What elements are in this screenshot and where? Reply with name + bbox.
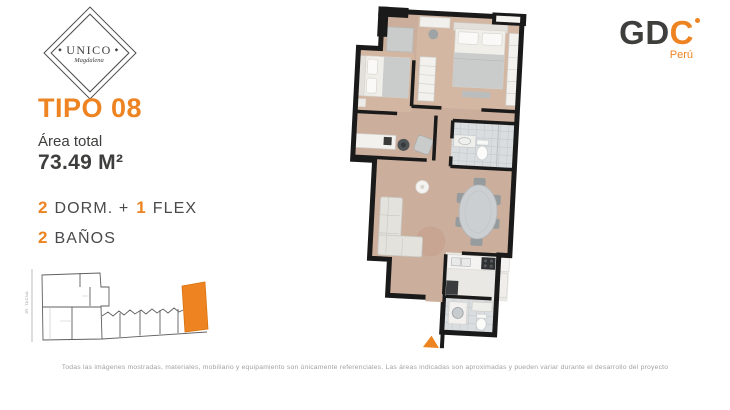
toilet-tank (477, 140, 489, 146)
dorm-label: DORM. + (54, 200, 129, 218)
diamond-ornament-icon: ◆ (58, 48, 63, 53)
entrance-marker-icon (423, 335, 440, 348)
area-value: 73.49 M² (38, 151, 123, 175)
bathroom-2 (444, 298, 497, 334)
gdc-wordmark: GDC (608, 16, 700, 49)
bathroom-1 (450, 120, 516, 169)
gdc-prefix: GD (619, 14, 670, 51)
floorplan (338, 4, 568, 360)
dresser (386, 27, 413, 52)
area-label: Área total (38, 133, 102, 150)
kitchen-cabinet-dark (446, 280, 459, 295)
disclaimer-text: Todas las imágenes mostradas, materiales… (0, 364, 730, 371)
desk (420, 17, 450, 29)
duvet-2 (382, 57, 410, 98)
diamond-ornament-icon: ◆ (115, 48, 120, 53)
flex-count: 1 (136, 198, 145, 218)
building-inner-detail (50, 296, 90, 340)
stove (481, 257, 496, 270)
flex-label: FLEX (153, 200, 197, 218)
bath-label: BAÑOS (54, 230, 116, 248)
sink (453, 135, 476, 148)
closet (418, 57, 436, 102)
duvet (453, 52, 505, 89)
toilet-2 (476, 318, 487, 331)
gdc-logo: GDC Perú (608, 16, 700, 61)
dorm-count: 2 (38, 198, 47, 218)
unit-type-title: TIPO 08 (38, 93, 142, 124)
kitchen-sink (451, 258, 460, 266)
gdc-trademark-dot-icon (695, 18, 700, 23)
toilet (476, 146, 488, 161)
entrance-gap (425, 293, 442, 302)
unico-logo: ◆ UNICO ◆ Magdalena (50, 12, 128, 92)
bath2-counter (472, 302, 492, 312)
spec-dorm-flex: 2 DORM. + 1 FLEX (38, 198, 197, 218)
nightstand (357, 98, 365, 106)
logo-title: UNICO (66, 43, 112, 58)
building-footprint-minimap: JR. TACNA (20, 266, 220, 346)
bath-count: 2 (38, 228, 47, 248)
spec-banos: 2 BAÑOS (38, 228, 116, 248)
printer (383, 137, 391, 145)
street-label: JR. TACNA (24, 291, 29, 314)
logo-subtitle: Magdalena (50, 57, 128, 64)
building-outline (42, 273, 207, 340)
wall-niche (496, 16, 520, 23)
highlighted-unit (182, 282, 208, 332)
gdc-accent-letter: C (670, 14, 694, 51)
door-stub (440, 332, 445, 348)
